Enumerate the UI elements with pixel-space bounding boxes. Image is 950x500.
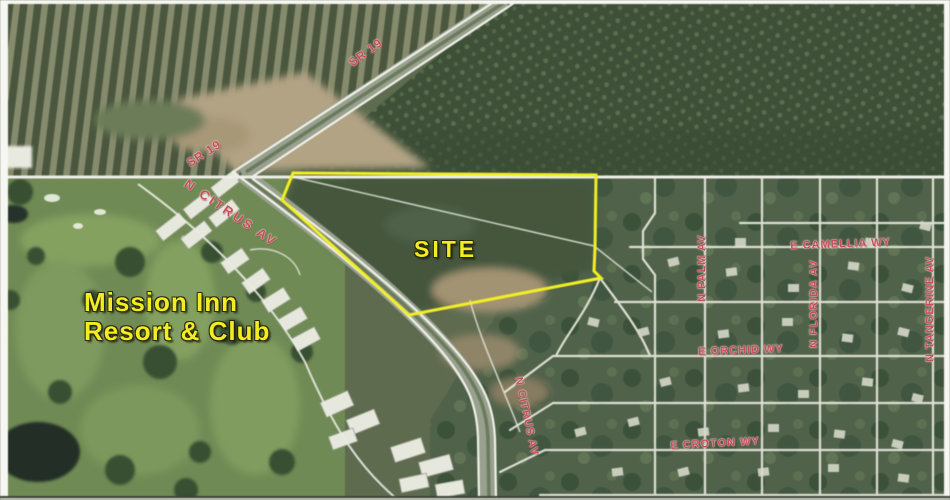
aerial-map-screenshot: SR 19 SR 19 N CITRUS AV N CITRUS AV E CA… bbox=[0, 0, 950, 500]
road-label-n-florida-av: N FLORIDA AV bbox=[808, 259, 820, 348]
resort-label: Mission Inn Resort & Club bbox=[84, 288, 270, 346]
site-label: SITE bbox=[414, 236, 477, 263]
resort-label-line1: Mission Inn bbox=[84, 288, 270, 317]
road-label-n-tangerine-av: N TANGERINE AV bbox=[924, 256, 936, 362]
road-label-n-palm-av: N PALM AV bbox=[696, 235, 708, 302]
resort-label-line2: Resort & Club bbox=[84, 317, 270, 346]
